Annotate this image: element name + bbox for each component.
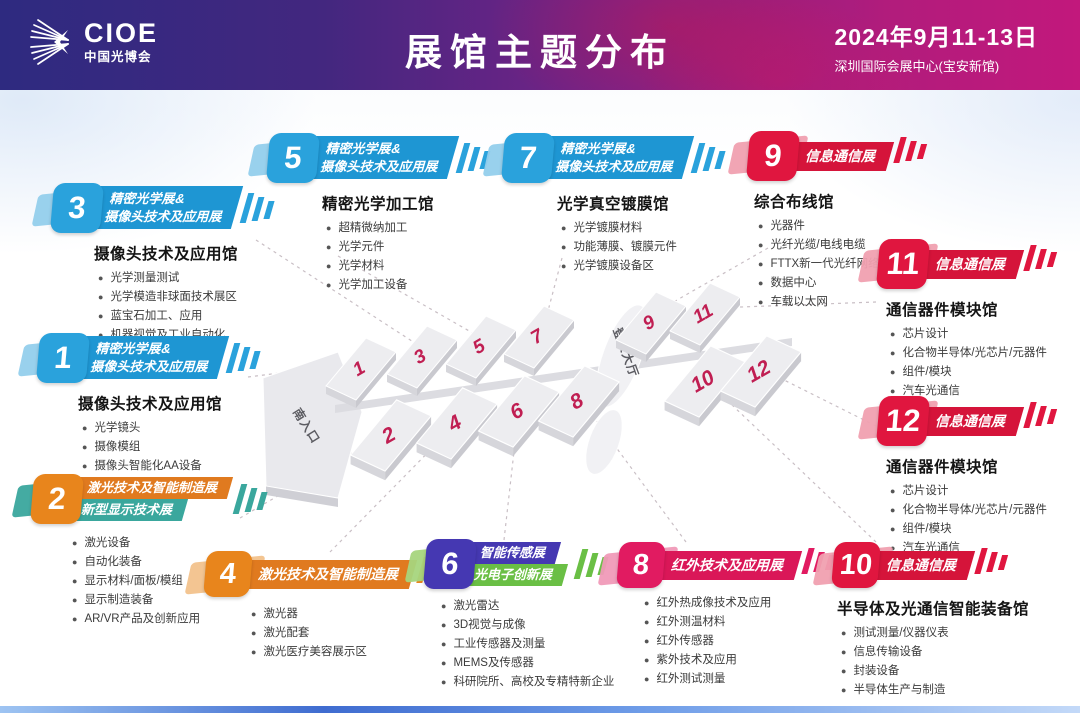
hall-item-text: AR/VR产品及创新应用: [84, 610, 200, 629]
hall-item-text: MEMS及传感器: [453, 654, 534, 673]
hall-item-text: 芯片设计: [902, 482, 948, 501]
hall-item-text: 3D视觉与成像: [453, 616, 525, 635]
ribbon-tail-stripes: [1027, 245, 1060, 271]
hall-item-text: 超精微纳加工: [338, 219, 407, 238]
hall-number-badge: 10: [831, 542, 881, 588]
hall-item-list: ●光学镀膜材料 ●功能薄膜、镀膜元件 ●光学镀膜设备区: [561, 219, 728, 276]
show-line: 精密光学展&: [559, 140, 681, 158]
hall-item-list: ●光学镜头 ●摄像模组 ●摄像头智能化AA设备: [82, 419, 263, 476]
hall-item-text: 化合物半导体/光芯片/元器件: [902, 344, 1046, 363]
hall-item: ●光学镀膜材料: [561, 219, 728, 238]
hall-item-text: 红外热成像技术及应用: [656, 594, 771, 613]
show-ribbon: 精密光学展& 摄像头技术及应用展: [86, 186, 243, 229]
hall-item-text: 激光器: [263, 605, 298, 624]
show-line: 精密光学展&: [94, 340, 216, 358]
hall-item: ●光学加工设备: [326, 276, 493, 295]
hall-card-8: 8 红外技术及应用展 ●红外热成像技术及应用 ●红外测温材料 ●红外传感器 ●紫…: [618, 542, 838, 689]
hall-title: 通信器件模块馆: [886, 298, 1060, 320]
bullet-icon: ●: [441, 637, 446, 652]
bullet-icon: ●: [326, 221, 331, 236]
bullet-icon: ●: [98, 290, 103, 305]
show-line: 精密光学展&: [108, 190, 230, 208]
bullet-icon: ●: [98, 309, 103, 324]
ribbon-tail-stripes: [237, 484, 270, 514]
hall-item-text: 半导体生产与制造: [853, 681, 945, 700]
bullet-icon: ●: [644, 634, 649, 649]
bullet-icon: ●: [841, 626, 846, 641]
show-ribbon: 信息通信展: [914, 250, 1024, 279]
hall-item: ●信息传输设备: [841, 643, 1029, 662]
hall-title: 光学真空镀膜馆: [557, 192, 728, 214]
hall-item: ●功能薄膜、镀膜元件: [561, 238, 728, 257]
event-date: 2024年9月11-13日: [834, 18, 1038, 52]
hall-number-badge: 8: [616, 542, 666, 588]
bullet-icon: ●: [758, 295, 763, 310]
map-hall-5-highlighted: 5: [446, 316, 516, 386]
show-line: 摄像头技术及应用展: [319, 158, 441, 176]
bullet-icon: ●: [758, 219, 763, 234]
hall-item-text: 显示材料/面板/模组: [84, 572, 182, 591]
hall-item: ●化合物半导体/光芯片/元器件: [890, 344, 1060, 363]
hall-item: ●红外热成像技术及应用: [644, 594, 838, 613]
show-ribbon: 信息通信展: [865, 551, 975, 580]
bullet-icon: ●: [251, 607, 256, 622]
hall-item-text: 功能薄膜、镀膜元件: [573, 238, 677, 257]
event-venue: 深圳国际会展中心(宝安新馆): [834, 56, 1038, 75]
bullet-icon: ●: [841, 664, 846, 679]
bullet-icon: ●: [841, 645, 846, 660]
hall-item-text: 光器件: [770, 217, 805, 236]
bullet-icon: ●: [758, 238, 763, 253]
bullet-icon: ●: [441, 656, 446, 671]
hall-item-list: ●激光器 ●激光配套 ●激光医疗美容展示区: [251, 605, 453, 662]
hall-item-text: 信息传输设备: [853, 643, 922, 662]
hall-item-list: ●测试测量/仪器仪表 ●信息传输设备 ●封装设备 ●半导体生产与制造: [841, 624, 1029, 700]
bullet-icon: ●: [72, 555, 77, 570]
hall-item: ●红外测试测量: [644, 670, 838, 689]
bullet-icon: ●: [758, 276, 763, 291]
bullet-icon: ●: [841, 683, 846, 698]
event-when: 2024年9月11-13日 深圳国际会展中心(宝安新馆): [834, 18, 1038, 75]
hall-title: 综合布线馆: [754, 190, 930, 212]
bullet-icon: ●: [441, 599, 446, 614]
hall-item: ●光学材料: [326, 257, 493, 276]
hall-item: ●封装设备: [841, 662, 1029, 681]
show-ribbon: 精密光学展& 摄像头技术及应用展: [302, 136, 459, 179]
bullet-icon: ●: [644, 596, 649, 611]
hall-item-text: 组件/模块: [902, 520, 951, 539]
bullet-icon: ●: [561, 240, 566, 255]
bullet-icon: ●: [890, 484, 895, 499]
hall-item-text: 红外测温材料: [656, 613, 725, 632]
hall-item: ●光学测量测试: [98, 269, 277, 288]
hall-item-list: ●芯片设计 ●化合物半导体/光芯片/元器件 ●组件/模块 ●汽车光通信: [890, 325, 1060, 401]
hall-item-text: 封装设备: [853, 662, 899, 681]
show-line: 摄像头技术及应用展: [103, 208, 225, 226]
poster-canvas: CIOE 中国光博会 展馆主题分布 2024年9月11-13日 深圳国际会展中心…: [0, 0, 1080, 713]
bullet-icon: ●: [758, 257, 763, 272]
hall-item-text: 光学镜头: [94, 419, 140, 438]
bullet-icon: ●: [890, 327, 895, 342]
bullet-icon: ●: [72, 612, 77, 627]
hall-item: ●激光医疗美容展示区: [251, 643, 453, 662]
hall-item: ●光学镀膜设备区: [561, 257, 728, 276]
hall-item-text: 红外测试测量: [656, 670, 725, 689]
hall-card-3: 3 精密光学展& 摄像头技术及应用展 摄像头技术及应用馆 ●光学测量测试 ●光学…: [52, 183, 277, 345]
bullet-icon: ●: [561, 221, 566, 236]
bullet-icon: ●: [251, 645, 256, 660]
hall-item: ●组件/模块: [890, 520, 1060, 539]
bullet-icon: ●: [82, 440, 87, 455]
hall-card-6: 6 智能传感展 光电子创新展 ●激光雷达 ●3D视觉与成像 ●工业传感器及测量 …: [425, 539, 614, 692]
bullet-icon: ●: [441, 675, 446, 690]
hall-item: ●光学元件: [326, 238, 493, 257]
hall-item-text: 摄像模组: [94, 438, 140, 457]
hall-item-text: 光学加工设备: [338, 276, 407, 295]
bullet-icon: ●: [98, 271, 103, 286]
hall-item-text: 数据中心: [770, 274, 816, 293]
bullet-icon: ●: [890, 346, 895, 361]
show-ribbon: 精密光学展& 摄像头技术及应用展: [72, 336, 229, 379]
bullet-icon: ●: [326, 259, 331, 274]
hall-item-text: 光学材料: [338, 257, 384, 276]
show-ribbon: 激光技术及智能制造展 新型显示技术展: [72, 477, 230, 520]
hall-number-badge: 4: [203, 551, 253, 597]
show-line: 摄像头技术及应用展: [554, 158, 676, 176]
hall-item-list: ●激光雷达 ●3D视觉与成像 ●工业传感器及测量 ●MEMS及传感器 ●科研院所…: [441, 597, 614, 692]
bullet-icon: ●: [72, 536, 77, 551]
hall-item-text: 光学测量测试: [110, 269, 179, 288]
hall-number-badge: 3: [50, 183, 104, 233]
ribbon-tail-stripes: [897, 137, 930, 163]
hall-item-text: 显示制造装备: [84, 591, 153, 610]
hall-item-text: 紫外技术及应用: [656, 651, 737, 670]
hall-item: ●激光雷达: [441, 597, 614, 616]
hall-item-text: 激光雷达: [453, 597, 499, 616]
bullet-icon: ●: [890, 503, 895, 518]
show-ribbon: 智能传感展 光电子创新展: [465, 542, 571, 585]
ribbon-tail-stripes: [695, 143, 728, 173]
hall-number-badge: 7: [501, 133, 555, 183]
hall-item: ●组件/模块: [890, 363, 1060, 382]
hall-item-text: 光纤光缆/电线电缆: [770, 236, 865, 255]
hall-number-badge: 9: [746, 131, 800, 181]
hall-item: ●半导体生产与制造: [841, 681, 1029, 700]
hall-item: ●紫外技术及应用: [644, 651, 838, 670]
show-ribbon: 红外技术及应用展: [650, 551, 802, 580]
hall-item: ●蓝宝石加工、应用: [98, 307, 277, 326]
bullet-icon: ●: [72, 593, 77, 608]
bullet-icon: ●: [326, 240, 331, 255]
map-hall-7: 7: [504, 306, 574, 376]
bullet-icon: ●: [82, 421, 87, 436]
hall-item: ●光器件: [758, 217, 930, 236]
hall-item: ●芯片设计: [890, 482, 1060, 501]
bullet-icon: ●: [326, 278, 331, 293]
show-line: 激光技术及智能制造展: [69, 477, 233, 499]
hall-item-text: 激光医疗美容展示区: [263, 643, 367, 662]
hall-item-text: 测试测量/仪器仪表: [853, 624, 948, 643]
hall-item: ●摄像模组: [82, 438, 263, 457]
show-line: 摄像头技术及应用展: [89, 358, 211, 376]
show-line: 智能传感展: [462, 542, 561, 564]
hall-title: 半导体及光通信智能装备馆: [837, 597, 1029, 619]
hall-item: ●工业传感器及测量: [441, 635, 614, 654]
hall-card-1: 1 精密光学展& 摄像头技术及应用展 摄像头技术及应用馆 ●光学镜头 ●摄像模组…: [38, 333, 263, 476]
hall-card-5: 5 精密光学展& 摄像头技术及应用展 精密光学加工馆 ●超精微纳加工 ●光学元件…: [268, 133, 493, 295]
bullet-icon: ●: [890, 365, 895, 380]
bullet-icon: ●: [644, 615, 649, 630]
hall-number-badge: 6: [423, 539, 477, 589]
hall-item: ●激光器: [251, 605, 453, 624]
hall-item-text: 组件/模块: [902, 363, 951, 382]
bullet-icon: ●: [561, 259, 566, 274]
ribbon-tail-stripes: [1027, 402, 1060, 428]
hall-item-text: 芯片设计: [902, 325, 948, 344]
bottom-accent-bar: [0, 706, 1080, 713]
map-hall-11: 11: [670, 283, 740, 353]
show-ribbon: 信息通信展: [914, 407, 1024, 436]
hall-card-10: 10 信息通信展 半导体及光通信智能装备馆 ●测试测量/仪器仪表 ●信息传输设备…: [833, 542, 1029, 700]
hall-item-text: 光学镀膜设备区: [573, 257, 654, 276]
hall-item-text: 红外传感器: [656, 632, 714, 651]
hall-title: 通信器件模块馆: [886, 455, 1060, 477]
hall-title: 摄像头技术及应用馆: [78, 392, 263, 414]
hall-item-text: 车载以太网: [770, 293, 828, 312]
hall-item: ●光学镜头: [82, 419, 263, 438]
bullet-icon: ●: [644, 653, 649, 668]
hall-item: ●激光配套: [251, 624, 453, 643]
hall-item: ●3D视觉与成像: [441, 616, 614, 635]
hall-card-12: 12 信息通信展 通信器件模块馆 ●芯片设计 ●化合物半导体/光芯片/元器件 ●…: [878, 396, 1060, 558]
hall-card-7: 7 精密光学展& 摄像头技术及应用展 光学真空镀膜馆 ●光学镀膜材料 ●功能薄膜…: [503, 133, 728, 276]
hall-number-badge: 11: [876, 239, 930, 289]
hall-title: 精密光学加工馆: [322, 192, 493, 214]
hall-title: 摄像头技术及应用馆: [94, 242, 277, 264]
hall-item-list: ●超精微纳加工 ●光学元件 ●光学材料 ●光学加工设备: [326, 219, 493, 295]
hall-item-text: 激光设备: [84, 534, 130, 553]
hall-item-text: 光学元件: [338, 238, 384, 257]
ribbon-tail-stripes: [230, 343, 263, 373]
hall-item-text: 光学模造非球面技术展区: [110, 288, 237, 307]
show-line: 精密光学展&: [324, 140, 446, 158]
hall-card-11: 11 信息通信展 通信器件模块馆 ●芯片设计 ●化合物半导体/光芯片/元器件 ●…: [878, 239, 1060, 401]
hall-item: ●测试测量/仪器仪表: [841, 624, 1029, 643]
hall-item-text: 化合物半导体/光芯片/元器件: [902, 501, 1046, 520]
hall-item-text: 自动化装备: [84, 553, 142, 572]
bullet-icon: ●: [251, 626, 256, 641]
hall-item-text: 激光配套: [263, 624, 309, 643]
bullet-icon: ●: [72, 574, 77, 589]
hall-item-list: ●红外热成像技术及应用 ●红外测温材料 ●红外传感器 ●紫外技术及应用 ●红外测…: [644, 594, 838, 689]
bullet-icon: ●: [441, 618, 446, 633]
show-ribbon: 激光技术及智能制造展: [237, 560, 417, 589]
hall-item: ●红外传感器: [644, 632, 838, 651]
hall-item-text: 光学镀膜材料: [573, 219, 642, 238]
hall-item: ●光学模造非球面技术展区: [98, 288, 277, 307]
bullet-icon: ●: [82, 459, 87, 474]
hall-item: ●科研院所、高校及专精特新企业: [441, 673, 614, 692]
hall-item: ●化合物半导体/光芯片/元器件: [890, 501, 1060, 520]
map-hall-1: 1: [326, 338, 396, 408]
hall-number-badge: 5: [266, 133, 320, 183]
hall-item: ●芯片设计: [890, 325, 1060, 344]
bullet-icon: ●: [890, 522, 895, 537]
hall-number-badge: 1: [36, 333, 90, 383]
hall-number-badge: 2: [30, 474, 84, 524]
ribbon-tail-stripes: [978, 548, 1011, 574]
show-ribbon: 精密光学展& 摄像头技术及应用展: [537, 136, 694, 179]
hall-item: ●MEMS及传感器: [441, 654, 614, 673]
bullet-icon: ●: [644, 672, 649, 687]
hall-item: ●超精微纳加工: [326, 219, 493, 238]
show-ribbon: 信息通信展: [784, 142, 894, 171]
hall-item-text: 科研院所、高校及专精特新企业: [453, 673, 614, 692]
hall-item-text: 工业传感器及测量: [453, 635, 545, 654]
hall-number-badge: 12: [876, 396, 930, 446]
header-banner: CIOE 中国光博会 展馆主题分布 2024年9月11-13日 深圳国际会展中心…: [0, 0, 1080, 90]
hall-item-text: 蓝宝石加工、应用: [110, 307, 202, 326]
map-hall-3: 3: [387, 326, 457, 396]
hall-item: ●红外测温材料: [644, 613, 838, 632]
